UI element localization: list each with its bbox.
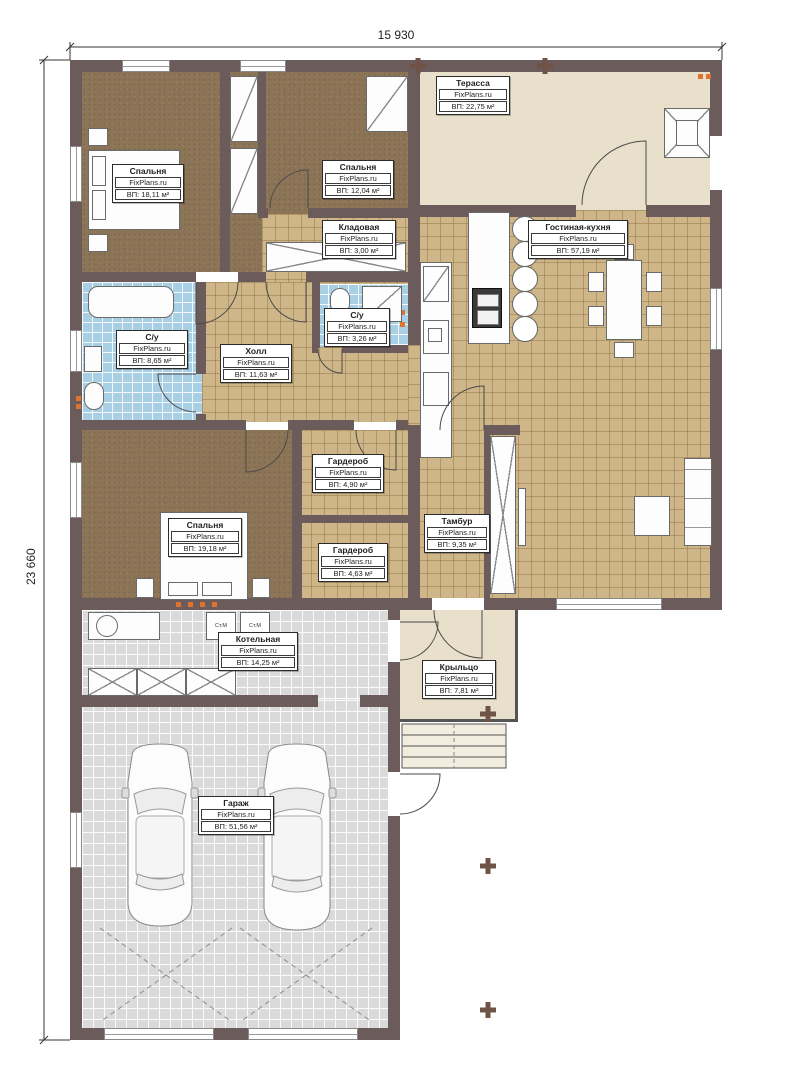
room-label-vestibule: Тамбур FixPlans.ru ВП: 9,35 м² <box>424 514 490 553</box>
room-label-bedroom-3: Спальня FixPlans.ru ВП: 19,18 м² <box>168 518 242 557</box>
room-area: ВП: 4,90 м² <box>315 479 381 490</box>
room-name: С/у <box>118 332 186 342</box>
room-name: Спальня <box>324 162 392 172</box>
room-name: Котельная <box>220 634 296 644</box>
room-brand: FixPlans.ru <box>171 531 239 542</box>
room-label-storage: Кладовая FixPlans.ru ВП: 3,00 м² <box>322 220 396 259</box>
room-label-wardrobe-1: Гардероб FixPlans.ru ВП: 4,90 м² <box>312 454 384 493</box>
room-name: Гараж <box>200 798 272 808</box>
room-area: ВП: 9,35 м² <box>427 539 487 550</box>
floor-plan: 15 930 23 660 <box>0 0 792 1080</box>
room-area: ВП: 11,63 м² <box>223 369 289 380</box>
room-brand: FixPlans.ru <box>223 357 289 368</box>
room-brand: FixPlans.ru <box>119 343 185 354</box>
room-brand: FixPlans.ru <box>115 177 181 188</box>
room-label-bedroom-2: Спальня FixPlans.ru ВП: 12,04 м² <box>322 160 394 199</box>
room-name: Спальня <box>114 166 182 176</box>
room-label-bathroom-2: С/у FixPlans.ru ВП: 3,26 м² <box>324 308 390 347</box>
room-area: ВП: 19,18 м² <box>171 543 239 554</box>
room-brand: FixPlans.ru <box>427 527 487 538</box>
room-brand: FixPlans.ru <box>425 673 493 684</box>
room-brand: FixPlans.ru <box>325 233 393 244</box>
room-area: ВП: 57,19 м² <box>531 245 625 256</box>
room-area: ВП: 7,81 м² <box>425 685 493 696</box>
room-area: ВП: 12,04 м² <box>325 185 391 196</box>
plan-linework <box>0 0 792 1080</box>
dimension-top: 15 930 <box>70 28 722 42</box>
room-area: ВП: 51,56 м² <box>201 821 271 832</box>
car <box>122 744 198 926</box>
garage-door-brace <box>100 928 372 1022</box>
room-label-living-kitchen: Гостиная-кухня FixPlans.ru ВП: 57,19 м² <box>528 220 628 259</box>
room-label-wardrobe-2: Гардероб FixPlans.ru ВП: 4,63 м² <box>318 543 388 582</box>
room-area: ВП: 3,00 м² <box>325 245 393 256</box>
room-name: Гостиная-кухня <box>530 222 626 232</box>
room-name: С/у <box>326 310 388 320</box>
dimension-left: 23 660 <box>24 548 38 585</box>
room-name: Гардероб <box>320 545 386 555</box>
room-brand: FixPlans.ru <box>315 467 381 478</box>
room-brand: FixPlans.ru <box>221 645 295 656</box>
room-name: Крыльцо <box>424 662 494 672</box>
room-brand: FixPlans.ru <box>321 556 385 567</box>
porch-steps <box>402 724 506 768</box>
room-area: ВП: 8,65 м² <box>119 355 185 366</box>
room-area: ВП: 18,11 м² <box>115 189 181 200</box>
room-name: Тамбур <box>426 516 488 526</box>
room-label-garage: Гараж FixPlans.ru ВП: 51,56 м² <box>198 796 274 835</box>
room-name: Кладовая <box>324 222 394 232</box>
room-brand: FixPlans.ru <box>327 321 387 332</box>
room-brand: FixPlans.ru <box>531 233 625 244</box>
room-label-hall: Холл FixPlans.ru ВП: 11,63 м² <box>220 344 292 383</box>
room-label-terrace: Терасса FixPlans.ru ВП: 22,75 м² <box>436 76 510 115</box>
room-area: ВП: 3,26 м² <box>327 333 387 344</box>
room-label-bedroom-1: Спальня FixPlans.ru ВП: 18,11 м² <box>112 164 184 203</box>
room-area: ВП: 22,75 м² <box>439 101 507 112</box>
room-area: ВП: 4,63 м² <box>321 568 385 579</box>
room-name: Гардероб <box>314 456 382 466</box>
room-name: Холл <box>222 346 290 356</box>
room-label-boiler-room: Котельная FixPlans.ru ВП: 14,25 м² <box>218 632 298 671</box>
room-brand: FixPlans.ru <box>325 173 391 184</box>
room-name: Спальня <box>170 520 240 530</box>
car <box>258 744 336 930</box>
room-label-bathroom-1: С/у FixPlans.ru ВП: 8,65 м² <box>116 330 188 369</box>
room-area: ВП: 14,25 м² <box>221 657 295 668</box>
room-name: Терасса <box>438 78 508 88</box>
room-brand: FixPlans.ru <box>439 89 507 100</box>
room-brand: FixPlans.ru <box>201 809 271 820</box>
room-label-porch: Крыльцо FixPlans.ru ВП: 7,81 м² <box>422 660 496 699</box>
